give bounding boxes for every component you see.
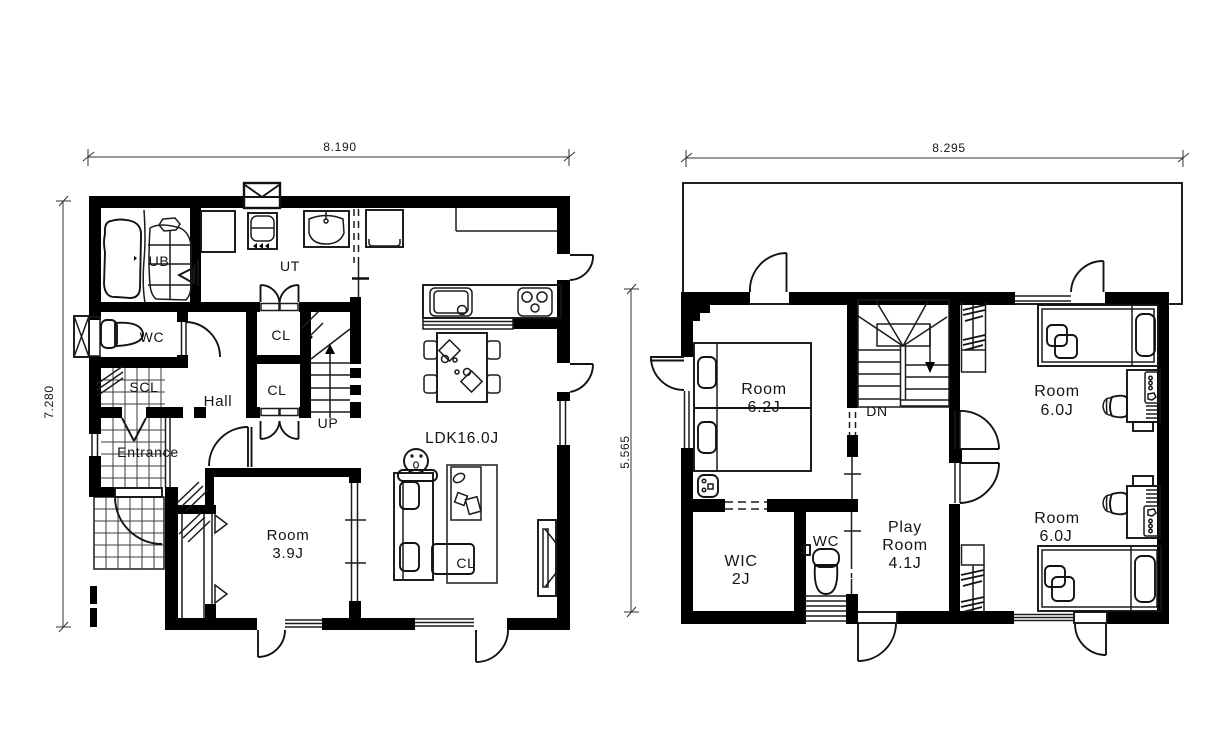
svg-text:2J: 2J xyxy=(732,571,750,588)
svg-text:Room: Room xyxy=(267,527,310,544)
svg-text:6.0J: 6.0J xyxy=(1039,528,1072,545)
svg-text:6.2J: 6.2J xyxy=(747,399,780,416)
svg-text:WIC: WIC xyxy=(724,553,757,570)
svg-text:8.295: 8.295 xyxy=(932,141,966,155)
svg-text:WC: WC xyxy=(813,533,839,550)
svg-text:7.280: 7.280 xyxy=(42,385,56,419)
svg-text:UT: UT xyxy=(280,258,300,274)
svg-text:Room: Room xyxy=(1034,510,1079,527)
svg-text:Room: Room xyxy=(882,537,927,554)
svg-text:CL: CL xyxy=(456,555,475,571)
svg-text:Room: Room xyxy=(741,381,786,398)
svg-text:SCL: SCL xyxy=(129,379,158,395)
svg-text:Entrance: Entrance xyxy=(117,444,179,460)
svg-text:Hall: Hall xyxy=(204,393,233,410)
svg-text:UB: UB xyxy=(149,253,170,269)
svg-text:LDK16.0J: LDK16.0J xyxy=(425,430,499,447)
svg-text:5.565: 5.565 xyxy=(618,435,632,469)
svg-text:Room: Room xyxy=(1034,383,1079,400)
svg-text:CL: CL xyxy=(267,382,286,398)
svg-text:DN: DN xyxy=(866,403,888,419)
svg-text:3.9J: 3.9J xyxy=(272,545,303,562)
svg-text:8.190: 8.190 xyxy=(323,140,357,154)
svg-text:WC: WC xyxy=(140,329,165,345)
svg-text:6.0J: 6.0J xyxy=(1040,402,1073,419)
svg-text:4.1J: 4.1J xyxy=(888,555,921,572)
svg-text:Play: Play xyxy=(888,519,922,536)
svg-text:CL: CL xyxy=(271,327,290,343)
svg-text:UP: UP xyxy=(318,415,339,431)
